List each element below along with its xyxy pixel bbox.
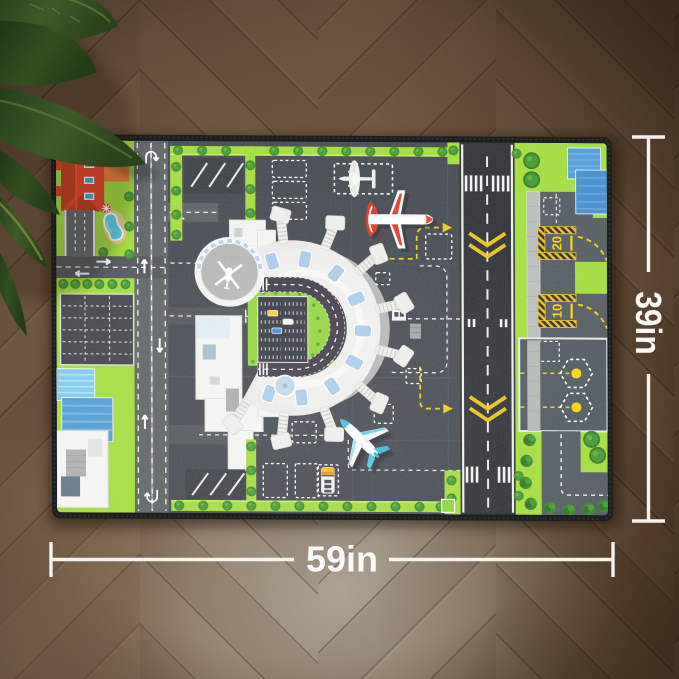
svg-text:59in: 59in bbox=[306, 539, 378, 580]
svg-text:39in: 39in bbox=[628, 291, 668, 354]
